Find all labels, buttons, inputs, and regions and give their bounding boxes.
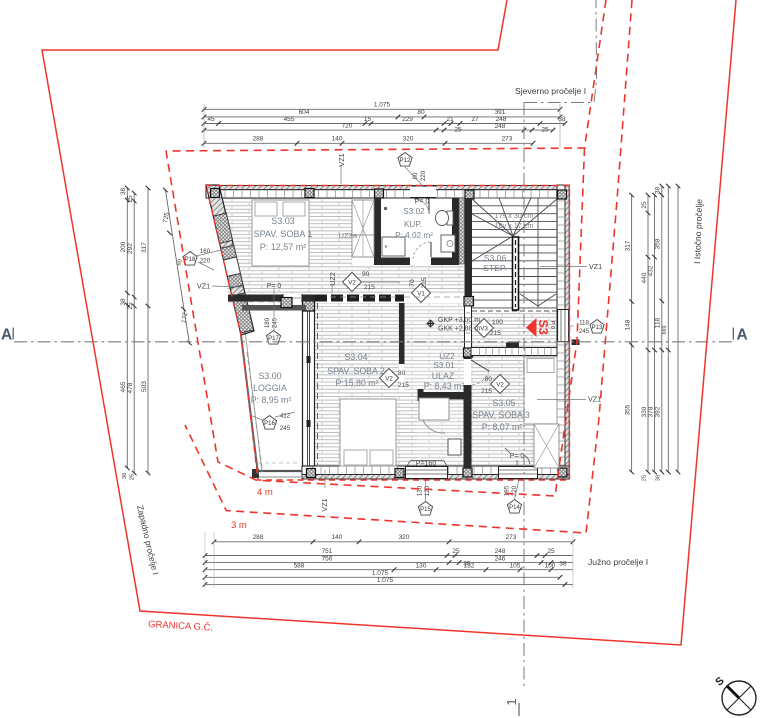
svg-text:A: A [737, 327, 748, 344]
svg-text:273: 273 [502, 136, 513, 143]
svg-text:V2: V2 [385, 375, 393, 382]
svg-text:P16: P16 [264, 421, 275, 427]
svg-text:25: 25 [541, 127, 549, 134]
svg-text:248: 248 [495, 548, 506, 555]
svg-text:152: 152 [464, 562, 475, 569]
svg-text:292: 292 [127, 243, 134, 254]
svg-text:45: 45 [207, 116, 215, 123]
svg-text:P: 8,43 m²: P: 8,43 m² [424, 381, 465, 391]
svg-text:27: 27 [471, 116, 479, 123]
svg-text:P= 0: P= 0 [267, 283, 282, 290]
svg-text:1.075: 1.075 [372, 570, 389, 577]
svg-text:38: 38 [656, 475, 662, 481]
svg-text:118: 118 [579, 320, 589, 327]
svg-text:P:15,80 m²: P:15,80 m² [335, 378, 378, 388]
svg-text:288: 288 [253, 534, 264, 541]
svg-text:25: 25 [547, 548, 555, 555]
svg-text:317: 317 [624, 240, 631, 251]
svg-text:140: 140 [332, 534, 343, 541]
svg-text:38: 38 [558, 116, 566, 123]
svg-text:1.075: 1.075 [377, 577, 394, 584]
svg-text:25: 25 [452, 548, 460, 555]
svg-text:P= 0: P= 0 [415, 199, 430, 206]
svg-text:25: 25 [641, 201, 648, 209]
svg-text:25: 25 [642, 475, 648, 481]
svg-text:S3.06: S3.06 [484, 253, 507, 263]
svg-text:70: 70 [409, 279, 416, 287]
svg-text:GKP +3,00 m: GKP +3,00 m [438, 317, 480, 324]
svg-text:355: 355 [624, 404, 631, 415]
svg-text:25: 25 [127, 302, 134, 310]
svg-text:SPAV, SOBA 3: SPAV, SOBA 3 [472, 410, 530, 420]
svg-text:120: 120 [424, 485, 431, 496]
svg-text:VZ1: VZ1 [588, 395, 601, 404]
svg-text:S3.00: S3.00 [259, 371, 282, 381]
svg-text:248: 248 [495, 123, 506, 130]
svg-text:V2: V2 [496, 381, 504, 388]
svg-text:1: 1 [504, 698, 519, 705]
svg-text:273: 273 [506, 534, 517, 541]
svg-text:VZ1: VZ1 [197, 282, 210, 291]
svg-text:751: 751 [322, 548, 333, 555]
svg-text:GKK +2,88 m: GKK +2,88 m [438, 326, 480, 333]
svg-text:P12: P12 [400, 158, 411, 164]
svg-text:38: 38 [120, 188, 127, 196]
svg-text:17š x 30 cm: 17š x 30 cm [495, 211, 534, 220]
svg-text:P: 4,02 m²: P: 4,02 m² [395, 231, 433, 240]
svg-text:432: 432 [647, 265, 654, 276]
svg-text:25: 25 [130, 474, 136, 480]
svg-text:245: 245 [272, 317, 279, 328]
svg-text:756: 756 [322, 556, 333, 563]
svg-text:669: 669 [662, 326, 668, 335]
svg-text:S3.01: S3.01 [433, 361, 455, 370]
svg-text:STEP.: STEP. [483, 263, 507, 273]
svg-text:25: 25 [127, 195, 134, 203]
svg-text:215: 215 [421, 277, 428, 288]
svg-text:90: 90 [362, 271, 370, 278]
svg-text:80: 80 [417, 109, 425, 116]
svg-text:180: 180 [264, 317, 271, 328]
svg-text:4 m: 4 m [257, 487, 273, 498]
svg-text:130: 130 [417, 485, 424, 496]
svg-text:15: 15 [364, 116, 372, 123]
svg-text:P18: P18 [185, 257, 196, 263]
svg-text:LOGGIA: LOGGIA [253, 383, 287, 393]
svg-text:P: 12,57 m²: P: 12,57 m² [260, 242, 307, 252]
svg-text:455: 455 [284, 116, 295, 123]
svg-text:VZ1: VZ1 [589, 262, 602, 271]
svg-text:359: 359 [655, 238, 662, 249]
svg-text:SPAV. SOBA 1: SPAV. SOBA 1 [254, 229, 313, 239]
svg-text:S3.04: S3.04 [345, 352, 368, 362]
svg-text:UZ3a: UZ3a [339, 231, 358, 240]
svg-text:720: 720 [342, 123, 353, 130]
svg-text:VZ1: VZ1 [337, 153, 346, 166]
svg-text:288: 288 [253, 136, 264, 143]
svg-text:V2: V2 [348, 279, 356, 286]
svg-text:SPAV. SOBA 2: SPAV. SOBA 2 [327, 366, 385, 376]
svg-text:21: 21 [446, 116, 454, 123]
svg-text:VZ1: VZ1 [320, 498, 329, 511]
svg-text:392: 392 [655, 406, 662, 417]
svg-text:38: 38 [559, 561, 567, 568]
svg-text:Sjeverno pročelje I: Sjeverno pročelje I [515, 86, 586, 96]
svg-text:215: 215 [398, 382, 409, 389]
svg-text:P: 8,95 m²: P: 8,95 m² [251, 395, 292, 405]
svg-text:215: 215 [364, 284, 375, 291]
svg-text:25: 25 [454, 127, 462, 134]
svg-text:215: 215 [490, 330, 501, 337]
svg-text:105: 105 [510, 562, 521, 569]
svg-text:V3: V3 [480, 325, 488, 332]
svg-text:S3.02: S3.02 [403, 207, 425, 216]
svg-text:245: 245 [280, 425, 291, 432]
svg-text:Južno pročelje I: Južno pročelje I [588, 557, 648, 567]
svg-text:317: 317 [141, 242, 148, 253]
svg-text:148: 148 [624, 319, 631, 330]
svg-text:245: 245 [579, 328, 590, 335]
svg-text:18v x 17 cm: 18v x 17 cm [495, 221, 534, 230]
svg-text:118: 118 [655, 317, 662, 328]
svg-text:e: e [385, 244, 388, 250]
svg-text:1.075: 1.075 [374, 102, 391, 109]
svg-text:P= 0: P= 0 [510, 453, 525, 460]
svg-text:ULAZ: ULAZ [432, 371, 455, 381]
svg-text:248: 248 [496, 116, 507, 123]
svg-text:588: 588 [294, 562, 305, 569]
svg-text:A: A [1, 327, 12, 344]
svg-text:S3.03: S3.03 [271, 216, 295, 226]
svg-text:S3.05: S3.05 [493, 398, 516, 408]
svg-text:220: 220 [420, 170, 427, 181]
svg-text:P 0: P 0 [549, 321, 555, 330]
svg-text:P15: P15 [420, 507, 431, 513]
svg-text:V1: V1 [417, 290, 425, 297]
svg-text:378: 378 [647, 406, 654, 417]
svg-text:38: 38 [122, 473, 128, 479]
svg-text:195: 195 [504, 485, 511, 496]
svg-text:478: 478 [127, 382, 134, 393]
svg-text:3 m: 3 m [231, 520, 247, 531]
svg-text:320: 320 [403, 136, 414, 143]
svg-text:80: 80 [485, 376, 493, 383]
svg-text:100: 100 [545, 562, 556, 569]
svg-text:UZ2: UZ2 [439, 352, 455, 361]
svg-text:140: 140 [332, 136, 343, 143]
svg-text:80: 80 [398, 370, 406, 377]
svg-text:604: 604 [299, 109, 310, 116]
svg-text:100: 100 [492, 319, 503, 326]
svg-text:130: 130 [416, 562, 427, 569]
svg-text:246: 246 [495, 556, 506, 563]
svg-text:503: 503 [141, 381, 148, 392]
svg-text:38: 38 [655, 187, 662, 195]
svg-text:215: 215 [481, 388, 492, 395]
svg-text:KUP.: KUP. [404, 220, 422, 229]
svg-text:320: 320 [399, 534, 410, 541]
svg-text:229: 229 [402, 116, 413, 123]
svg-text:P13: P13 [592, 325, 603, 331]
svg-text:P: 8,07 m²: P: 8,07 m² [482, 422, 523, 432]
svg-text:P=160: P=160 [416, 461, 437, 468]
svg-text:UZ2: UZ2 [328, 272, 337, 286]
svg-text:P14: P14 [509, 505, 520, 511]
svg-text:S3: S3 [536, 320, 550, 335]
